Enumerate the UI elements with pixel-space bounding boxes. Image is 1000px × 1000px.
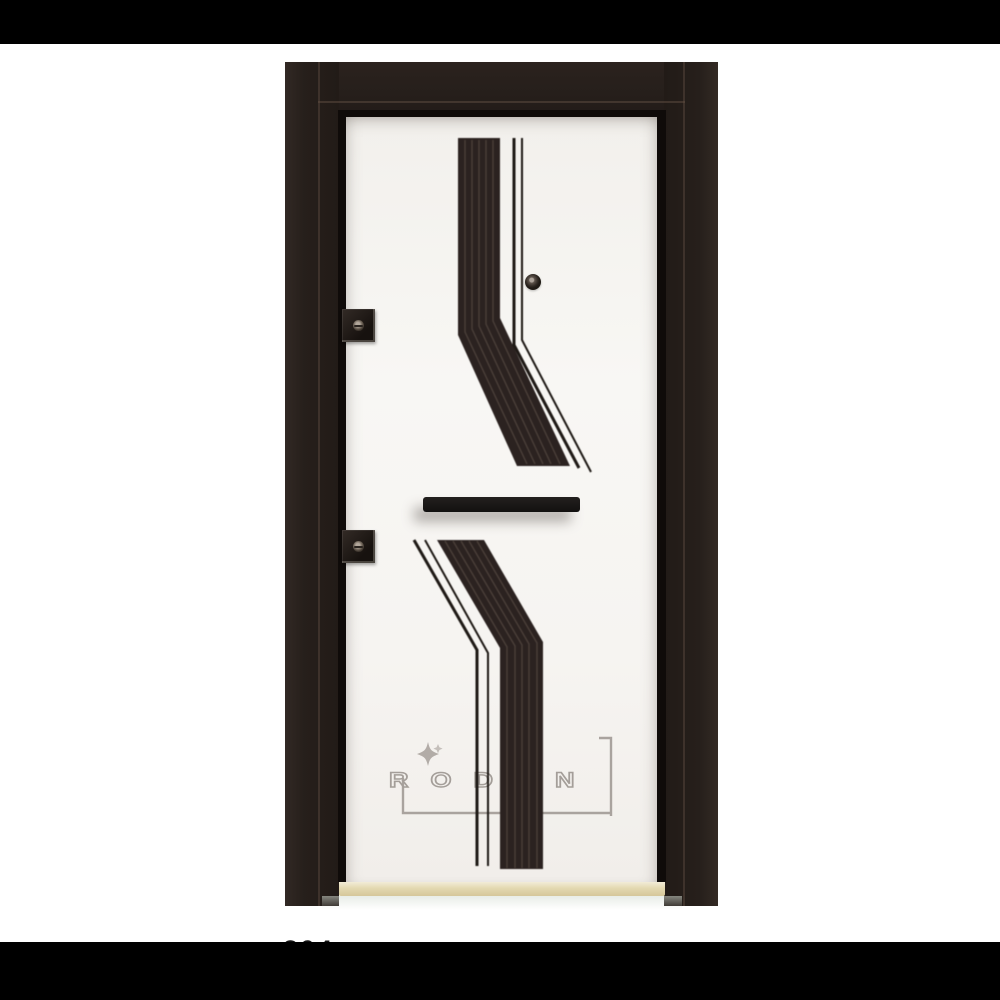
product-image: RODEN bbox=[0, 0, 1000, 1000]
brand-text: RODEN bbox=[389, 768, 619, 793]
door-frame-left-leg bbox=[285, 62, 339, 906]
sparkle-dot bbox=[433, 744, 442, 753]
hinge-bottom bbox=[342, 530, 375, 563]
frame-seam-left bbox=[318, 62, 320, 906]
peephole bbox=[525, 274, 541, 290]
threshold bbox=[339, 882, 665, 896]
floor-shadow bbox=[322, 896, 682, 910]
sparkle-icon bbox=[417, 742, 439, 766]
door-frame-header bbox=[285, 62, 718, 115]
frame-seam-top bbox=[318, 101, 685, 103]
door-frame-right-leg bbox=[664, 62, 718, 906]
hinge-knob bbox=[353, 541, 364, 552]
letterbox-bottom bbox=[0, 942, 1000, 1000]
letterbox-top bbox=[0, 0, 1000, 44]
door-handle bbox=[423, 497, 580, 512]
hinge-knob bbox=[353, 320, 364, 331]
hinge-top bbox=[342, 309, 375, 342]
roden-logo: RODEN bbox=[385, 728, 630, 824]
frame-seam-right bbox=[683, 62, 685, 906]
